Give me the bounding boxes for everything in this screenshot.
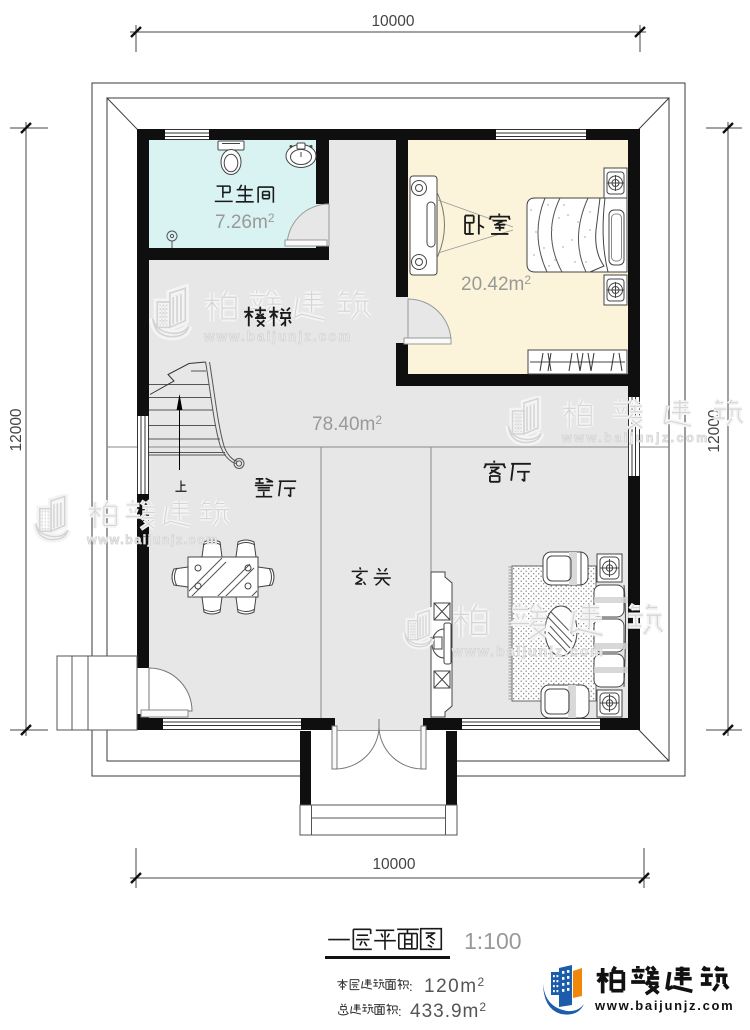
svg-text:7.26m2: 7.26m2 xyxy=(215,211,275,233)
svg-text:1:100: 1:100 xyxy=(464,928,522,954)
svg-text:10000: 10000 xyxy=(371,13,414,30)
svg-text:10000: 10000 xyxy=(372,856,415,873)
svg-text:www.baijunjz.com: www.baijunjz.com xyxy=(561,431,710,445)
svg-text:www.baijunjz.com: www.baijunjz.com xyxy=(594,998,734,1013)
svg-text:78.40m2: 78.40m2 xyxy=(312,413,382,435)
svg-text:433.9m2: 433.9m2 xyxy=(410,1000,487,1022)
svg-text:www.baijunjz.com: www.baijunjz.com xyxy=(86,533,219,547)
svg-text:www.baijunjz.com: www.baijunjz.com xyxy=(451,643,605,659)
svg-text::: : xyxy=(398,1004,402,1019)
svg-text::: : xyxy=(409,979,413,994)
svg-text:www.baijunjz.com: www.baijunjz.com xyxy=(203,329,353,344)
svg-text:12000: 12000 xyxy=(8,408,25,451)
svg-text:20.42m2: 20.42m2 xyxy=(461,273,531,295)
svg-text:120m2: 120m2 xyxy=(424,975,486,997)
